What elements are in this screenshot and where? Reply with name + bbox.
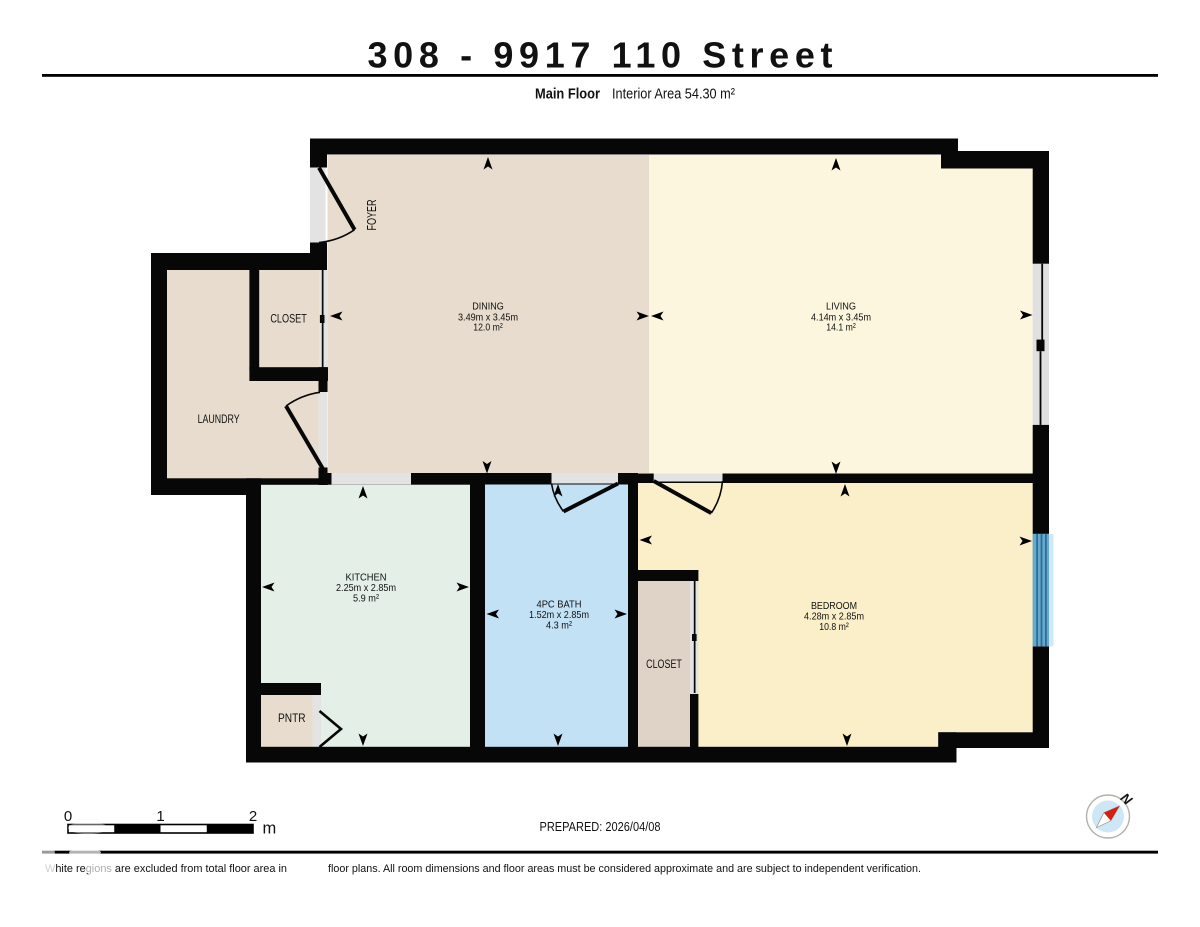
svg-text:10.8 m²: 10.8 m² (819, 621, 849, 633)
svg-text:PREPARED: 2026/04/08: PREPARED: 2026/04/08 (540, 819, 661, 834)
svg-text:12.0 m²: 12.0 m² (473, 321, 503, 333)
svg-text:14.1 m²: 14.1 m² (826, 321, 856, 333)
svg-text:LAUNDRY: LAUNDRY (198, 412, 240, 426)
svg-text:1: 1 (156, 808, 164, 825)
svg-text:5.9 m²: 5.9 m² (353, 592, 379, 604)
svg-text:m: m (263, 820, 277, 838)
svg-text:Main Floor: Main Floor (535, 86, 600, 103)
svg-text:308 - 9917 110 Street: 308 - 9917 110 Street (368, 35, 833, 76)
svg-text:Interior Area 54.30 m²: Interior Area 54.30 m² (612, 86, 735, 103)
svg-text:0: 0 (64, 808, 72, 825)
svg-text:floor plans. All room dimensio: floor plans. All room dimensions and flo… (328, 863, 921, 875)
svg-text:FOYER: FOYER (364, 200, 379, 231)
svg-text:CLOSET: CLOSET (270, 312, 307, 326)
svg-text:PNTR: PNTR (278, 711, 306, 725)
svg-text:4.3 m²: 4.3 m² (546, 619, 572, 631)
svg-text:White regions are excluded fro: White regions are excluded from total fl… (45, 863, 287, 875)
svg-text:2: 2 (249, 808, 257, 825)
svg-text:CLOSET: CLOSET (646, 657, 682, 671)
